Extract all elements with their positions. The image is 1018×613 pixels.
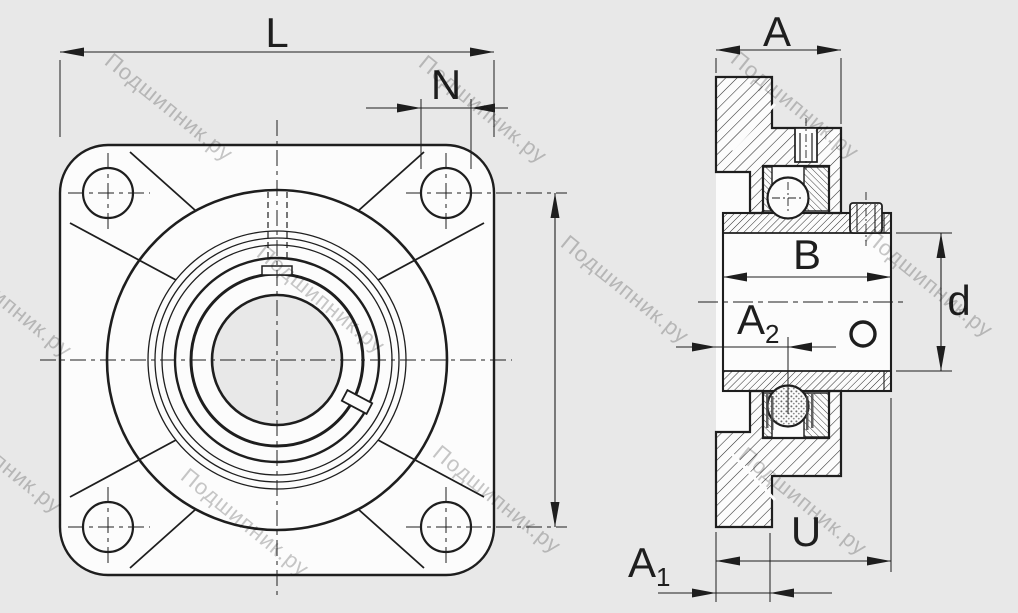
set-screw-hole bbox=[851, 322, 875, 346]
label-A1: A1 bbox=[628, 539, 670, 592]
dim-bolt-spacing bbox=[551, 193, 560, 527]
technical-drawing: L N A B d A2 U A1 bbox=[0, 0, 1018, 613]
label-B: B bbox=[793, 231, 821, 278]
lube-hole bbox=[795, 118, 817, 170]
dim-d bbox=[896, 233, 952, 371]
front-view bbox=[40, 48, 567, 601]
label-A: A bbox=[763, 8, 791, 55]
label-L: L bbox=[265, 9, 288, 56]
label-U: U bbox=[791, 508, 821, 555]
drawing-canvas: L N A B d A2 U A1 Подшипник.ру Подшипник… bbox=[0, 0, 1018, 613]
label-d: d bbox=[947, 277, 970, 324]
upper-ball bbox=[768, 178, 809, 219]
label-N: N bbox=[431, 61, 461, 108]
